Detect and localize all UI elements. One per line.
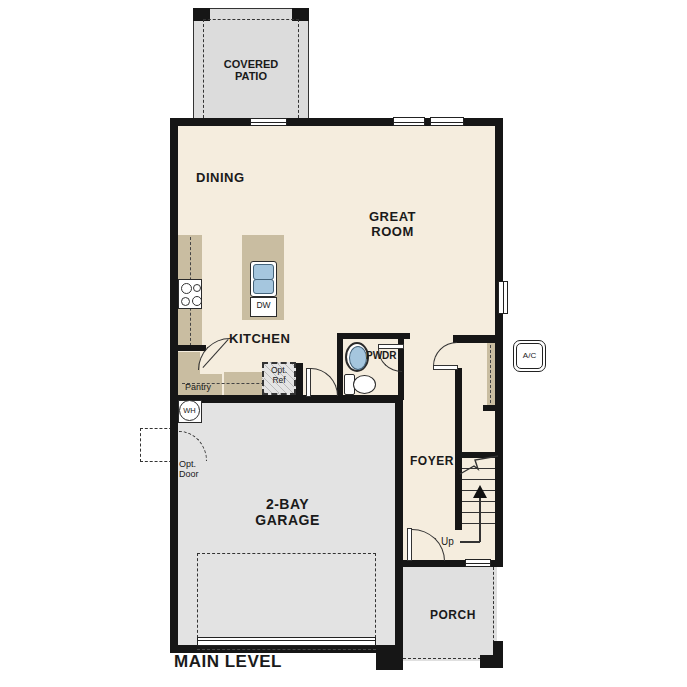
foyer-closet-dash (490, 345, 491, 403)
wall-hall-top (453, 335, 503, 343)
garage-door-dash (197, 649, 376, 650)
ac-unit-label: A/C (523, 352, 536, 360)
porch-edge-dashed-bottom (403, 658, 481, 659)
closet-door-leaf (433, 365, 458, 370)
sink-basin-top (253, 264, 274, 280)
stairs-up-label: Up (441, 536, 454, 548)
covered-patio-label: COVERED PATIO (193, 58, 309, 83)
porch-right-block (493, 641, 503, 655)
sink-basin-bottom (253, 279, 274, 294)
garage-line2: GARAGE (240, 513, 335, 529)
covered-patio-line1: COVERED (193, 58, 309, 70)
garage-door-clearance-dashed (197, 553, 376, 638)
patio-slider-window (250, 118, 287, 126)
water-heater-label: WH (183, 407, 196, 415)
covered-patio-line2: PATIO (193, 70, 309, 82)
great-room-line1: GREAT (355, 210, 430, 225)
garage-door (197, 637, 376, 646)
great-room-line2: ROOM (355, 225, 430, 240)
wall-stair-left (455, 368, 462, 530)
burner-3 (181, 297, 190, 306)
pwdr-label: PWDR (366, 350, 397, 361)
porch-corner-block (480, 655, 503, 668)
dishwasher: DW (250, 297, 277, 317)
kitchen-label: KITCHEN (229, 332, 290, 347)
stair-run-line (479, 497, 481, 542)
burner-4 (192, 296, 202, 306)
porch-label: PORCH (430, 609, 476, 622)
wall-left (170, 118, 178, 652)
range-cooktop (178, 279, 202, 309)
plan-title: MAIN LEVEL (174, 652, 282, 671)
pantry-label: Pantry (185, 382, 211, 392)
opt-door-line1: Opt. (179, 459, 199, 469)
burner-1 (181, 283, 192, 294)
dishwasher-label: DW (255, 301, 271, 310)
foyer-front-window (465, 559, 491, 567)
stair-break-line (459, 450, 499, 476)
toilet-bowl (353, 375, 376, 394)
water-heater: WH (179, 400, 200, 421)
optional-door-label: Opt. Door (179, 459, 199, 480)
wall-optref-stub (296, 363, 303, 396)
wall-closet-cap (483, 405, 503, 411)
foyer-label: FOYER (410, 455, 454, 468)
wall-kitchen-stub (170, 345, 206, 351)
dining-label: DINING (196, 171, 245, 186)
wall-garage-right (395, 395, 403, 670)
wall-garage-step-block (376, 645, 403, 670)
burner-2 (193, 284, 201, 292)
floor-plan: COVERED PATIO Opt. Ref Opt. Door (0, 0, 687, 687)
garage-line1: 2-BAY (240, 497, 335, 513)
wall-pwdr-left (337, 333, 343, 400)
stair-run-line-horizontal (460, 541, 480, 543)
wall-garage-top (170, 395, 403, 403)
kitchen-sink (250, 261, 277, 297)
stair-up-arrowhead (473, 485, 487, 498)
pwdr-sink-bowl (349, 346, 367, 370)
great-room-side-window (498, 281, 508, 314)
garage-label: 2-BAY GARAGE (240, 497, 335, 528)
porch-edge-dashed-right (493, 567, 494, 643)
great-room-window-2 (430, 117, 464, 126)
ac-unit: A/C (513, 340, 546, 372)
opt-ref-line2: Ref (262, 376, 296, 386)
great-room-window-1 (393, 117, 425, 126)
great-room-label: GREAT ROOM (355, 210, 430, 239)
opt-door-line2: Door (179, 469, 199, 479)
optional-refrigerator-label: Opt. Ref (262, 366, 296, 386)
